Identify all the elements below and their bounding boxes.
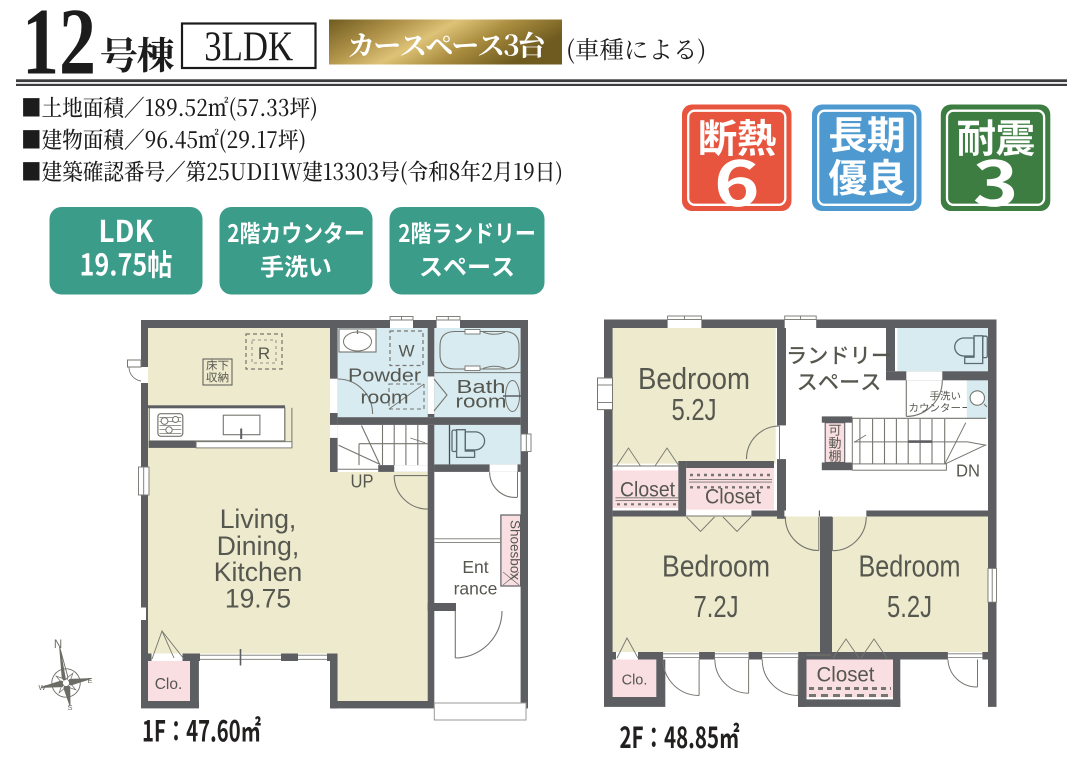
- svg-text:19.75: 19.75: [225, 584, 291, 614]
- svg-text:Kitchen: Kitchen: [214, 557, 302, 587]
- svg-text:S: S: [67, 703, 72, 712]
- svg-text:room: room: [456, 391, 507, 412]
- svg-text:room: room: [361, 387, 409, 408]
- svg-text:5.2J: 5.2J: [887, 589, 932, 624]
- svg-text:Closet: Closet: [620, 479, 675, 502]
- svg-text:Bedroom: Bedroom: [662, 549, 770, 584]
- svg-text:Closet: Closet: [705, 486, 761, 509]
- svg-text:Clo.: Clo.: [155, 676, 183, 693]
- svg-text:Living,: Living,: [220, 504, 297, 534]
- svg-text:E: E: [87, 676, 92, 685]
- svg-text:Bedroom: Bedroom: [638, 361, 750, 396]
- svg-text:Powder: Powder: [348, 365, 421, 386]
- svg-text:Shoesbox: Shoesbox: [508, 520, 523, 580]
- svg-text:3LDK: 3LDK: [204, 25, 293, 71]
- svg-text:UP: UP: [351, 471, 374, 492]
- svg-text:R: R: [258, 344, 270, 363]
- svg-text:rance: rance: [454, 579, 498, 599]
- svg-text:W: W: [398, 342, 414, 361]
- svg-text:Ent: Ent: [462, 557, 488, 577]
- svg-text:N: N: [54, 639, 62, 651]
- svg-text:5.2J: 5.2J: [672, 392, 717, 427]
- svg-text:DN: DN: [956, 461, 980, 481]
- svg-text:W: W: [38, 683, 46, 692]
- svg-text:Closet: Closet: [817, 663, 875, 687]
- svg-text:7.2J: 7.2J: [694, 589, 739, 624]
- svg-text:Clo.: Clo.: [622, 673, 648, 689]
- svg-text:Bedroom: Bedroom: [859, 549, 961, 584]
